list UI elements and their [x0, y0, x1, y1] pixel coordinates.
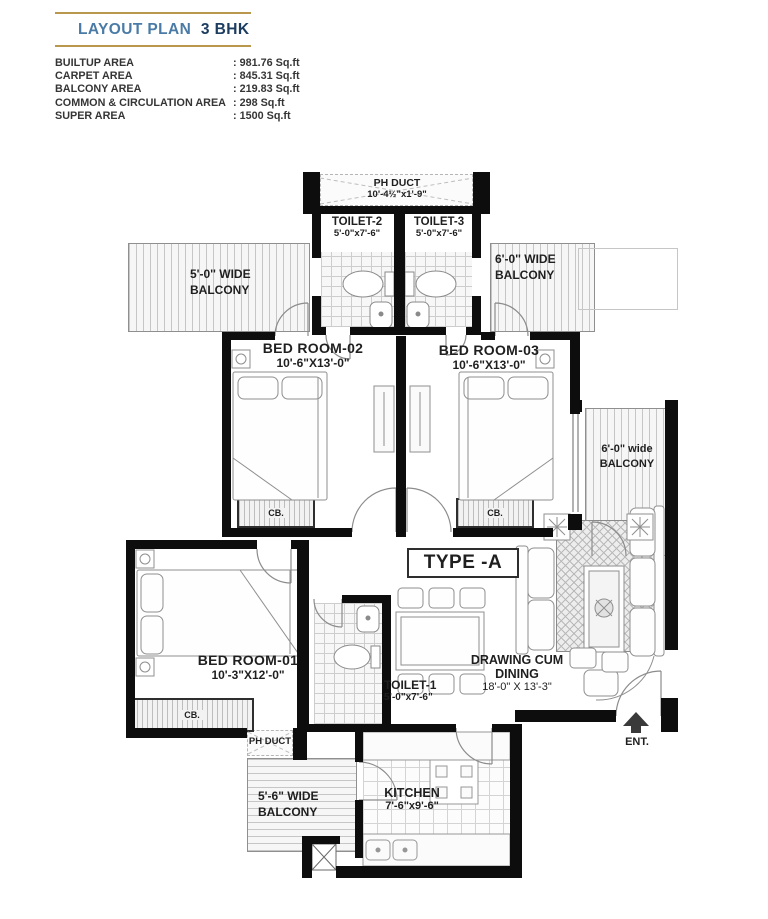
window-lines — [573, 414, 578, 512]
bedroom3-bed-furniture — [459, 372, 553, 500]
room-label-ph-duct-bottom: PH DUCT — [245, 736, 295, 747]
entrance-text: ENT. — [625, 736, 649, 748]
room-label-balcony-top-right: 6'-0'' WIDE BALCONY — [495, 251, 590, 283]
bedroom1-bed-furniture — [137, 570, 301, 656]
room-label-bedroom3: BED ROOM-03 10'-6"X13'-0" — [404, 342, 574, 372]
room-name: BED ROOM-03 — [404, 342, 574, 358]
room-label-toilet3: TOILET-3 5'-0"x7'-6" — [403, 216, 475, 239]
room-name-line2: DINING — [458, 667, 576, 681]
room-name-line1: DRAWING CUM — [458, 653, 576, 667]
room-name: PH DUCT — [249, 736, 291, 747]
room-dims: 10'-6"X13'-0" — [228, 356, 398, 370]
center-table — [584, 566, 624, 652]
room-name: BED ROOM-02 — [228, 340, 398, 356]
room-name: TOILET-3 — [403, 216, 475, 228]
toilet2-fixtures — [343, 271, 394, 328]
room-dims: 5'-0"x7'-6" — [403, 228, 475, 239]
room-dims: 5'-0"x7'-6" — [384, 692, 476, 703]
room-dims: 5'-0"x7'-6" — [318, 228, 396, 239]
balcony-word: BALCONY — [190, 283, 249, 297]
entrance-arrow-icon — [623, 712, 649, 733]
room-label-bedroom1: BED ROOM-01 10'-3"X12'-0" — [152, 652, 344, 682]
type-a-text: TYPE -A — [424, 552, 502, 574]
room-label-balcony-bottom: 5'-6" WIDE BALCONY — [258, 788, 358, 820]
balcony-word: BALCONY — [495, 268, 554, 282]
balcony-width: 5'-6" WIDE — [258, 789, 319, 803]
balcony-width: 6'-0'' WIDE — [495, 252, 556, 266]
sofa-left — [516, 546, 554, 654]
room-name: BED ROOM-01 — [152, 652, 344, 668]
toilet3-fixtures — [405, 271, 456, 328]
room-dims: 7'-6"x9'-6" — [358, 800, 466, 812]
room-name: TOILET-2 — [318, 216, 396, 228]
room-dims: 18'-0" X 13'-3" — [458, 681, 576, 693]
room-label-kitchen: KITCHEN 7'-6"x9'-6" — [358, 786, 466, 812]
room-dims: 10'-6"X13'-0" — [404, 358, 574, 372]
room-label-balcony-mid-right: 6'-0" wide BALCONY — [588, 442, 666, 472]
room-dims: 10'-4½"x1'-9" — [320, 189, 474, 200]
room-name: KITCHEN — [358, 786, 466, 800]
type-a-label: TYPE -A — [407, 548, 519, 578]
room-label-ph-duct-top: PH DUCT 10'-4½"x1'-9" — [320, 177, 474, 200]
room-label-drawing-dining: DRAWING CUM DINING 18'-0" X 13'-3" — [458, 653, 576, 693]
room-dims: 10'-3"X12'-0" — [152, 668, 344, 682]
room-label-balcony-top-left: 5'-0'' WIDE BALCONY — [190, 266, 315, 298]
room-name: PH DUCT — [320, 177, 474, 189]
service-shaft — [312, 844, 336, 870]
balcony-width: 5'-0'' WIDE — [190, 267, 251, 281]
plants — [544, 514, 653, 540]
bedroom2-bed-furniture — [233, 372, 327, 500]
room-label-bedroom2: BED ROOM-02 10'-6"X13'-0" — [228, 340, 398, 370]
balcony-word: BALCONY — [600, 458, 654, 470]
room-label-toilet2: TOILET-2 5'-0"x7'-6" — [318, 216, 396, 239]
balcony-word: BALCONY — [258, 805, 317, 819]
layout-plan-page: LAYOUT PLAN 3 BHK BUILTUP AREA : 981.76 … — [0, 0, 768, 919]
entrance-label: ENT. — [620, 736, 654, 748]
balcony-width: 6'-0" wide — [601, 443, 652, 455]
